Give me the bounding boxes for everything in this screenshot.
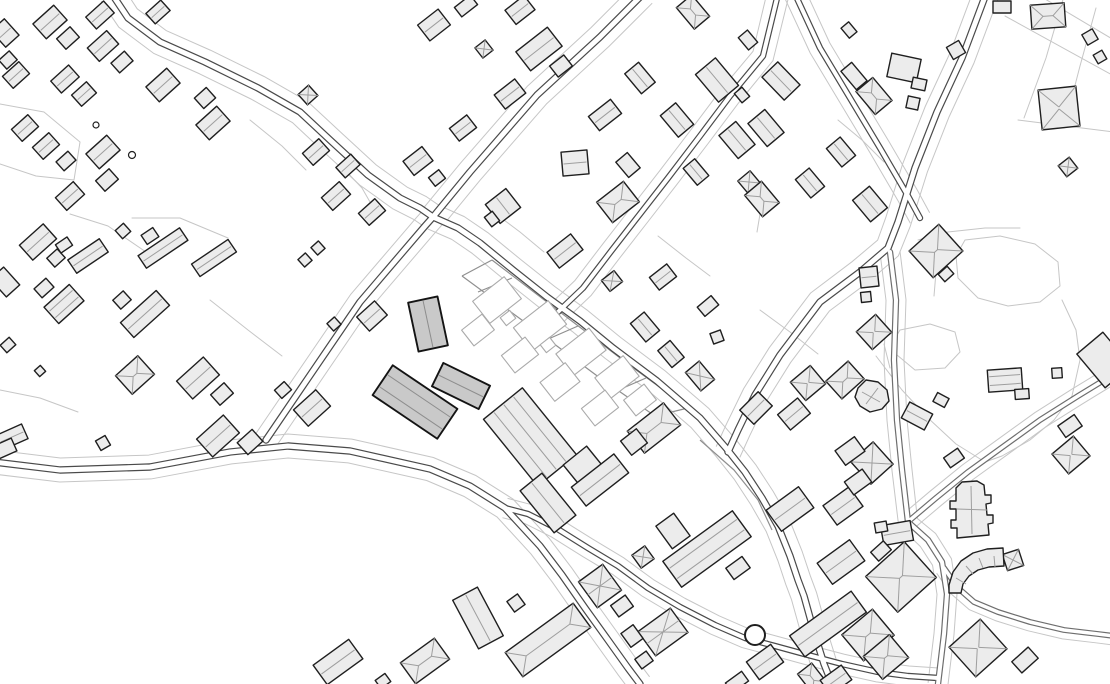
roundabout xyxy=(745,625,765,645)
building xyxy=(861,292,872,303)
building xyxy=(909,224,963,278)
building xyxy=(1030,3,1066,29)
building xyxy=(194,87,215,108)
building xyxy=(418,9,451,41)
building xyxy=(616,153,640,178)
building xyxy=(507,594,525,612)
building xyxy=(403,147,433,176)
building xyxy=(853,186,888,222)
building xyxy=(321,182,350,211)
building xyxy=(550,55,573,77)
building xyxy=(561,150,589,176)
building xyxy=(949,619,1007,677)
plots-layer xyxy=(462,277,657,426)
building xyxy=(547,234,583,268)
building xyxy=(859,266,879,288)
building xyxy=(725,671,748,684)
building xyxy=(635,651,653,669)
building xyxy=(676,0,709,29)
building xyxy=(72,82,97,107)
building xyxy=(778,398,811,430)
building xyxy=(358,199,385,226)
building xyxy=(588,99,621,130)
building xyxy=(726,556,750,579)
curved-building xyxy=(949,548,1004,593)
silo-small xyxy=(129,152,136,159)
building xyxy=(454,0,477,17)
building xyxy=(993,1,1011,13)
building xyxy=(475,40,493,58)
building xyxy=(505,603,591,677)
building xyxy=(146,0,170,24)
building xyxy=(944,448,965,468)
building xyxy=(449,115,476,141)
building xyxy=(987,368,1022,392)
building xyxy=(656,513,690,549)
building xyxy=(630,312,659,342)
building xyxy=(0,19,19,47)
building xyxy=(748,109,784,146)
building xyxy=(1058,415,1082,438)
building xyxy=(375,673,391,684)
building xyxy=(51,65,80,93)
building xyxy=(697,296,719,317)
building xyxy=(719,121,755,158)
building xyxy=(0,267,20,297)
building xyxy=(1093,50,1107,64)
marker-dot xyxy=(93,122,99,128)
building xyxy=(621,625,643,648)
building xyxy=(1015,389,1030,400)
building xyxy=(611,595,634,617)
building xyxy=(625,62,656,93)
building xyxy=(1077,332,1110,388)
building xyxy=(311,241,325,255)
church xyxy=(950,481,993,538)
building xyxy=(484,388,577,486)
building xyxy=(313,639,363,684)
building xyxy=(710,330,724,344)
building xyxy=(1082,29,1098,45)
building xyxy=(336,154,360,178)
building xyxy=(298,253,312,267)
building xyxy=(115,356,154,395)
building xyxy=(632,546,654,568)
building xyxy=(1058,157,1078,177)
building xyxy=(874,521,888,533)
building xyxy=(1002,549,1023,570)
building xyxy=(841,22,857,38)
building xyxy=(87,31,118,62)
highlighted-building xyxy=(408,296,448,351)
map-viewport xyxy=(0,0,1110,684)
building xyxy=(302,139,329,166)
rock-outcrop xyxy=(855,380,889,412)
building xyxy=(400,638,449,684)
map-canvas[interactable] xyxy=(0,0,1110,684)
building xyxy=(192,239,237,276)
building xyxy=(113,291,131,309)
building xyxy=(298,85,318,105)
building xyxy=(95,435,110,450)
building xyxy=(826,137,855,167)
building xyxy=(146,68,180,102)
building xyxy=(96,169,119,191)
building xyxy=(115,223,131,239)
building xyxy=(505,0,535,24)
building xyxy=(856,314,891,349)
building xyxy=(141,228,159,245)
building xyxy=(738,30,757,50)
building xyxy=(86,1,115,29)
building xyxy=(453,587,504,649)
road-fill-layer xyxy=(0,0,1110,684)
building xyxy=(649,264,676,290)
building xyxy=(11,115,38,142)
building xyxy=(0,337,16,352)
building xyxy=(597,181,640,222)
building xyxy=(32,133,59,160)
building xyxy=(196,106,230,140)
building xyxy=(57,27,80,49)
building xyxy=(906,96,920,110)
building xyxy=(795,168,824,198)
building xyxy=(638,608,688,656)
building xyxy=(1038,86,1080,130)
building xyxy=(494,79,526,109)
building xyxy=(933,393,949,408)
building xyxy=(68,239,108,274)
building xyxy=(56,151,76,171)
building xyxy=(34,278,54,298)
building xyxy=(817,540,865,585)
building xyxy=(86,135,120,169)
building xyxy=(1052,436,1090,474)
building xyxy=(658,340,684,367)
building xyxy=(34,365,45,376)
building xyxy=(55,182,84,211)
building xyxy=(211,383,234,405)
building xyxy=(911,77,927,91)
building xyxy=(1012,647,1038,673)
building xyxy=(578,564,621,608)
building xyxy=(685,361,714,391)
building xyxy=(1052,368,1063,379)
building xyxy=(111,51,133,73)
building xyxy=(790,365,825,400)
building xyxy=(601,271,622,292)
building xyxy=(683,159,709,185)
